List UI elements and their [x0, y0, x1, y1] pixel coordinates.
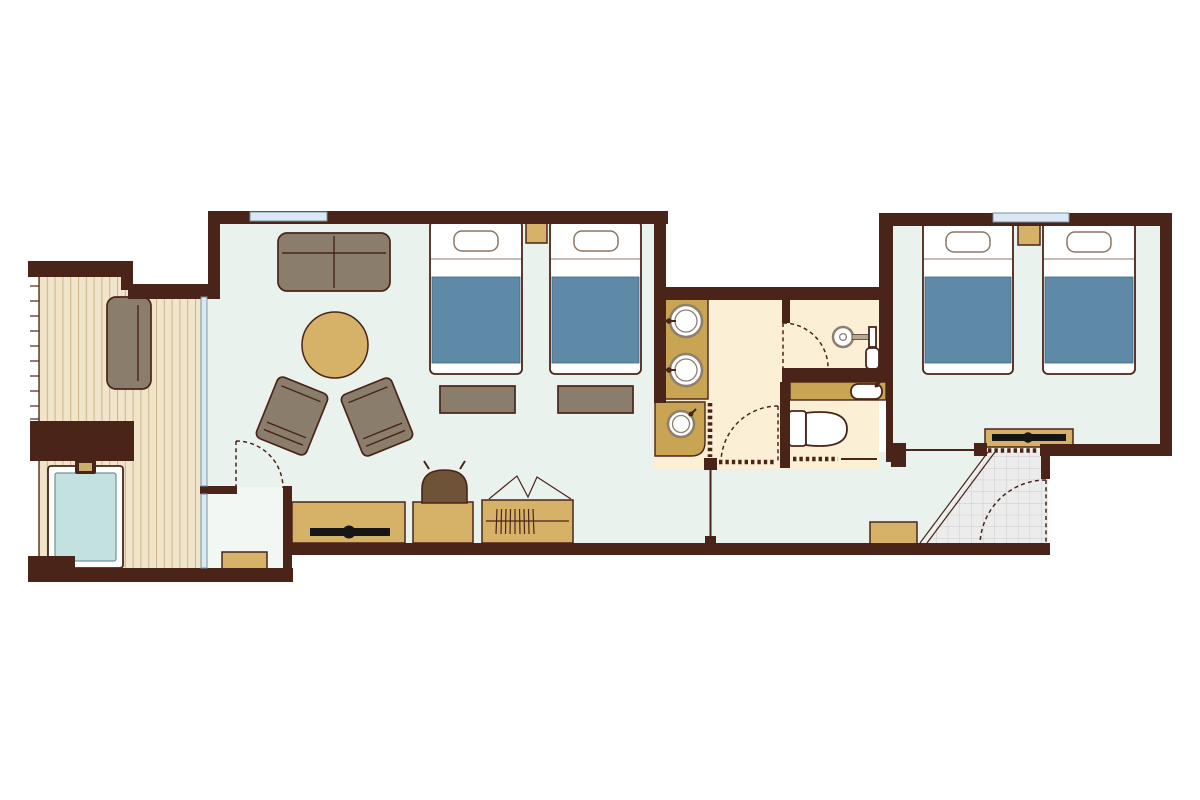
living-window: [250, 212, 327, 221]
deck-glass-wall-upper: [201, 297, 207, 486]
bedroom2-window: [993, 213, 1069, 222]
bed-bench-1: [440, 386, 515, 413]
alcove-counter: [655, 402, 705, 456]
toilet: [789, 411, 847, 446]
living-sofa: [278, 233, 390, 291]
privacy-wall: [30, 421, 134, 461]
twin-bed-2: [550, 221, 641, 374]
twin-bed-4: [1043, 222, 1135, 374]
desk: [413, 502, 473, 543]
tv-stand-2: [1023, 432, 1033, 442]
deck-glass-wall-lower: [201, 494, 207, 568]
round-table: [302, 312, 368, 378]
alcove-sink: [668, 409, 696, 437]
floor-plan-canvas: [0, 0, 1200, 800]
hot-tub: [48, 460, 123, 568]
shower-bench: [866, 348, 879, 369]
railing-ticks: [30, 286, 39, 419]
outdoor-sofa: [107, 297, 151, 389]
bed-bench-2: [558, 386, 633, 413]
tv-stand: [343, 526, 356, 539]
tv-console: [292, 502, 405, 543]
nightstand-1: [526, 221, 547, 243]
floor-plan: [0, 0, 1200, 800]
twin-bed-1: [430, 221, 522, 374]
entry-bench: [870, 522, 917, 545]
vanity-counter: [663, 299, 708, 399]
twin-bed-3: [923, 222, 1013, 374]
